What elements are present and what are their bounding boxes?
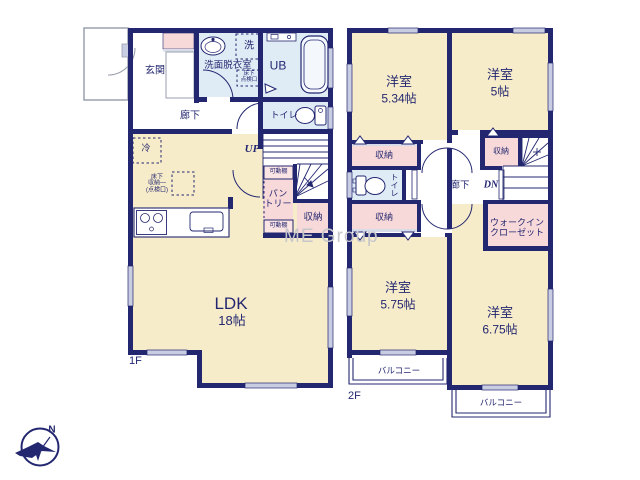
- cabinet-front-line: [163, 49, 194, 52]
- label-toilet-1f: トイレ: [270, 111, 297, 121]
- label-fridge: 冷: [141, 144, 150, 154]
- label-closet-nw: 収納: [375, 151, 393, 161]
- floorplan-page: { "watermark": "ME Group", "compass": { …: [0, 0, 640, 480]
- label-pantry: パン トリー: [264, 189, 291, 208]
- label-balcony-left: バルコニー: [378, 366, 420, 375]
- label-washroom: 洗面脱衣室: [204, 61, 252, 71]
- label-hallway-1f: 廊下: [180, 112, 200, 123]
- label-room-sw-name: 洋室: [385, 281, 411, 295]
- label-floor2: 2F: [348, 391, 361, 403]
- label-closet-sw: 収納: [375, 213, 393, 223]
- washbasin-icon: [201, 37, 225, 55]
- label-closet-ne: 収納: [493, 148, 509, 157]
- toilet2-icon: [353, 176, 385, 195]
- toilet1-icon: [296, 106, 327, 125]
- kitchen-counter-icon: [134, 208, 229, 237]
- label-hallway-2f: 廊下: [450, 181, 469, 191]
- label-stairs-up: UP: [245, 144, 260, 156]
- label-underfloor-storage: 床下 収納— (点検口): [146, 174, 168, 193]
- label-ldk-size: 18帖: [218, 314, 245, 328]
- genkan-step: [166, 52, 194, 98]
- shoe-cabinet: [163, 33, 194, 49]
- label-stairs-down: DN: [484, 181, 498, 192]
- label-room-ne-name: 洋室: [487, 68, 513, 82]
- label-room-se-size: 6.75帖: [482, 324, 517, 337]
- watermark: ME Group: [284, 227, 379, 248]
- label-room-sw-size: 5.75帖: [380, 299, 415, 312]
- label-unit-bath: UB: [270, 60, 287, 73]
- label-floor1: 1F: [129, 356, 142, 368]
- label-room-ne-size: 5帖: [491, 86, 510, 99]
- label-room-se-name: 洋室: [487, 306, 513, 320]
- compass-north-label: N: [48, 426, 55, 437]
- label-laundry: 洗: [244, 42, 254, 53]
- label-room-nw-size: 5.34帖: [381, 93, 416, 106]
- label-toilet-2f: トイレ: [390, 173, 398, 197]
- label-ldk-name: LDK: [214, 295, 247, 313]
- label-shelf-top: 可動棚: [269, 169, 287, 175]
- label-entrance: 玄関: [145, 67, 165, 78]
- room-sw-door-arc: [422, 204, 447, 229]
- floor1-structure: [84, 28, 333, 388]
- label-walk-in-closet: ウォークイン クローゼット: [490, 218, 544, 237]
- label-underfloor-access: 床下 点検口: [241, 72, 258, 84]
- porch: [84, 28, 128, 100]
- room-nw-door-arc: [422, 148, 447, 173]
- label-room-nw-name: 洋室: [386, 75, 412, 89]
- label-storage-1f: 収納: [303, 213, 322, 223]
- label-balcony-right: バルコニー: [480, 398, 522, 407]
